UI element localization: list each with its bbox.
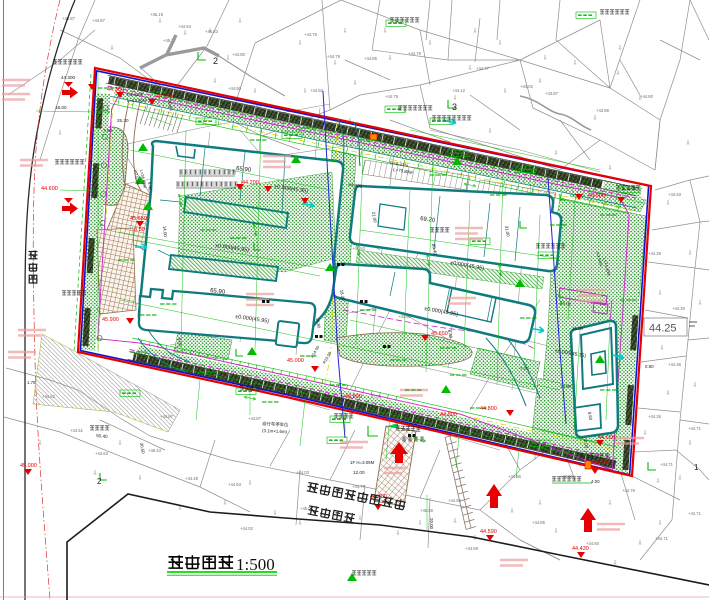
svg-text:44.800: 44.800 [440, 412, 457, 418]
svg-text:+43.93: +43.93 [668, 192, 682, 197]
svg-text:44.300: 44.300 [61, 75, 75, 80]
svg-text:+44.48: +44.48 [185, 476, 199, 481]
svg-text:+44.76: +44.76 [622, 488, 636, 493]
svg-text:+46.43: +46.43 [148, 448, 162, 453]
svg-text:44.650: 44.650 [598, 435, 615, 441]
svg-text:+44.80: +44.80 [640, 94, 654, 99]
svg-text:+44.50: +44.50 [228, 86, 242, 91]
svg-text:+44.02: +44.02 [240, 526, 254, 531]
svg-text:+44.02: +44.02 [520, 84, 534, 89]
svg-text:45.650: 45.650 [130, 216, 147, 222]
svg-text:44.800: 44.800 [345, 394, 362, 400]
svg-text:+44.71: +44.71 [688, 426, 702, 431]
svg-text:13.80: 13.80 [560, 384, 572, 389]
svg-text:44.430: 44.430 [572, 546, 589, 552]
svg-text:45.650: 45.650 [431, 331, 448, 337]
svg-text:44.800: 44.800 [480, 406, 497, 412]
svg-text:45.000: 45.000 [287, 358, 304, 364]
svg-text:44.300: 44.300 [107, 87, 124, 93]
svg-text:4.00: 4.00 [591, 479, 600, 484]
svg-text:+44.83: +44.83 [205, 29, 219, 34]
svg-text:45.000: 45.000 [20, 463, 37, 469]
svg-text:+44.30: +44.30 [672, 306, 686, 311]
svg-text:20.00: 20.00 [429, 518, 434, 530]
svg-text:44.600: 44.600 [593, 460, 610, 466]
svg-text:44.600: 44.600 [41, 186, 58, 192]
svg-text:+44.77: +44.77 [352, 484, 366, 489]
svg-text:15.00: 15.00 [572, 326, 584, 331]
svg-text:1.75: 1.75 [27, 380, 36, 385]
svg-text:+44.86: +44.86 [508, 474, 522, 479]
svg-text:14.00: 14.00 [162, 226, 168, 238]
svg-text:+44.87: +44.87 [92, 18, 106, 23]
svg-text:+44.12: +44.12 [452, 88, 466, 93]
svg-text:44.200: 44.200 [242, 180, 259, 186]
svg-text:+44.63: +44.63 [95, 451, 109, 456]
svg-text:45.500: 45.500 [588, 193, 605, 199]
svg-text:+44.96: +44.96 [560, 474, 574, 479]
svg-text:+44.36: +44.36 [668, 362, 682, 367]
svg-text:+44.51: +44.51 [70, 428, 84, 433]
svg-text:+44.87: +44.87 [248, 416, 262, 421]
svg-text:7.00: 7.00 [103, 128, 112, 133]
svg-text:+44.71: +44.71 [688, 511, 702, 516]
svg-text:2: 2 [213, 56, 218, 66]
svg-text:1: 1 [694, 463, 699, 472]
svg-text:6.00: 6.00 [177, 338, 183, 348]
svg-text:+44.78: +44.78 [408, 51, 422, 56]
svg-text:+44.63: +44.63 [228, 482, 242, 487]
svg-text:+44.85: +44.85 [364, 56, 378, 61]
svg-text:+43.89: +43.89 [596, 108, 610, 113]
svg-text:+44.80: +44.80 [232, 52, 246, 57]
svg-text:8.50: 8.50 [134, 227, 145, 233]
svg-text:+44.77: +44.77 [476, 66, 490, 71]
svg-text:+44.36: +44.36 [648, 414, 662, 419]
svg-text:1F H=3.09M: 1F H=3.09M [350, 460, 375, 465]
svg-text:2: 2 [97, 477, 102, 486]
svg-text:+44.94: +44.94 [178, 24, 192, 29]
svg-text:+43.87: +43.87 [545, 91, 559, 96]
svg-text:25.30: 25.30 [117, 118, 129, 123]
svg-text:0.90: 0.90 [645, 364, 654, 369]
svg-text:+45.19: +45.19 [150, 12, 164, 17]
svg-text:3: 3 [452, 102, 457, 112]
svg-text:45.900: 45.900 [102, 317, 119, 323]
svg-text:44.25: 44.25 [649, 323, 677, 335]
svg-text:+44.28: +44.28 [648, 251, 662, 256]
svg-text:+44.75: +44.75 [304, 32, 318, 37]
svg-text:L=13.50M: L=13.50M [127, 98, 147, 103]
svg-text:i=1.62%: i=1.62% [127, 92, 143, 97]
svg-text:+44.79: +44.79 [327, 54, 341, 59]
svg-text:+44.50: +44.50 [310, 88, 324, 93]
svg-text:+44.71: +44.71 [655, 536, 669, 541]
svg-text:+44.03: +44.03 [296, 470, 310, 475]
svg-text:44.590: 44.590 [480, 529, 497, 535]
svg-text:7.20: 7.20 [520, 366, 529, 371]
svg-text:+44.85: +44.85 [532, 520, 546, 525]
svg-text:12.00: 12.00 [353, 470, 365, 475]
svg-text:18.00: 18.00 [55, 105, 67, 110]
svg-text:+44.59: +44.59 [465, 546, 479, 551]
svg-text:+44.79: +44.79 [385, 94, 399, 99]
svg-text:+44.71: +44.71 [660, 462, 674, 467]
